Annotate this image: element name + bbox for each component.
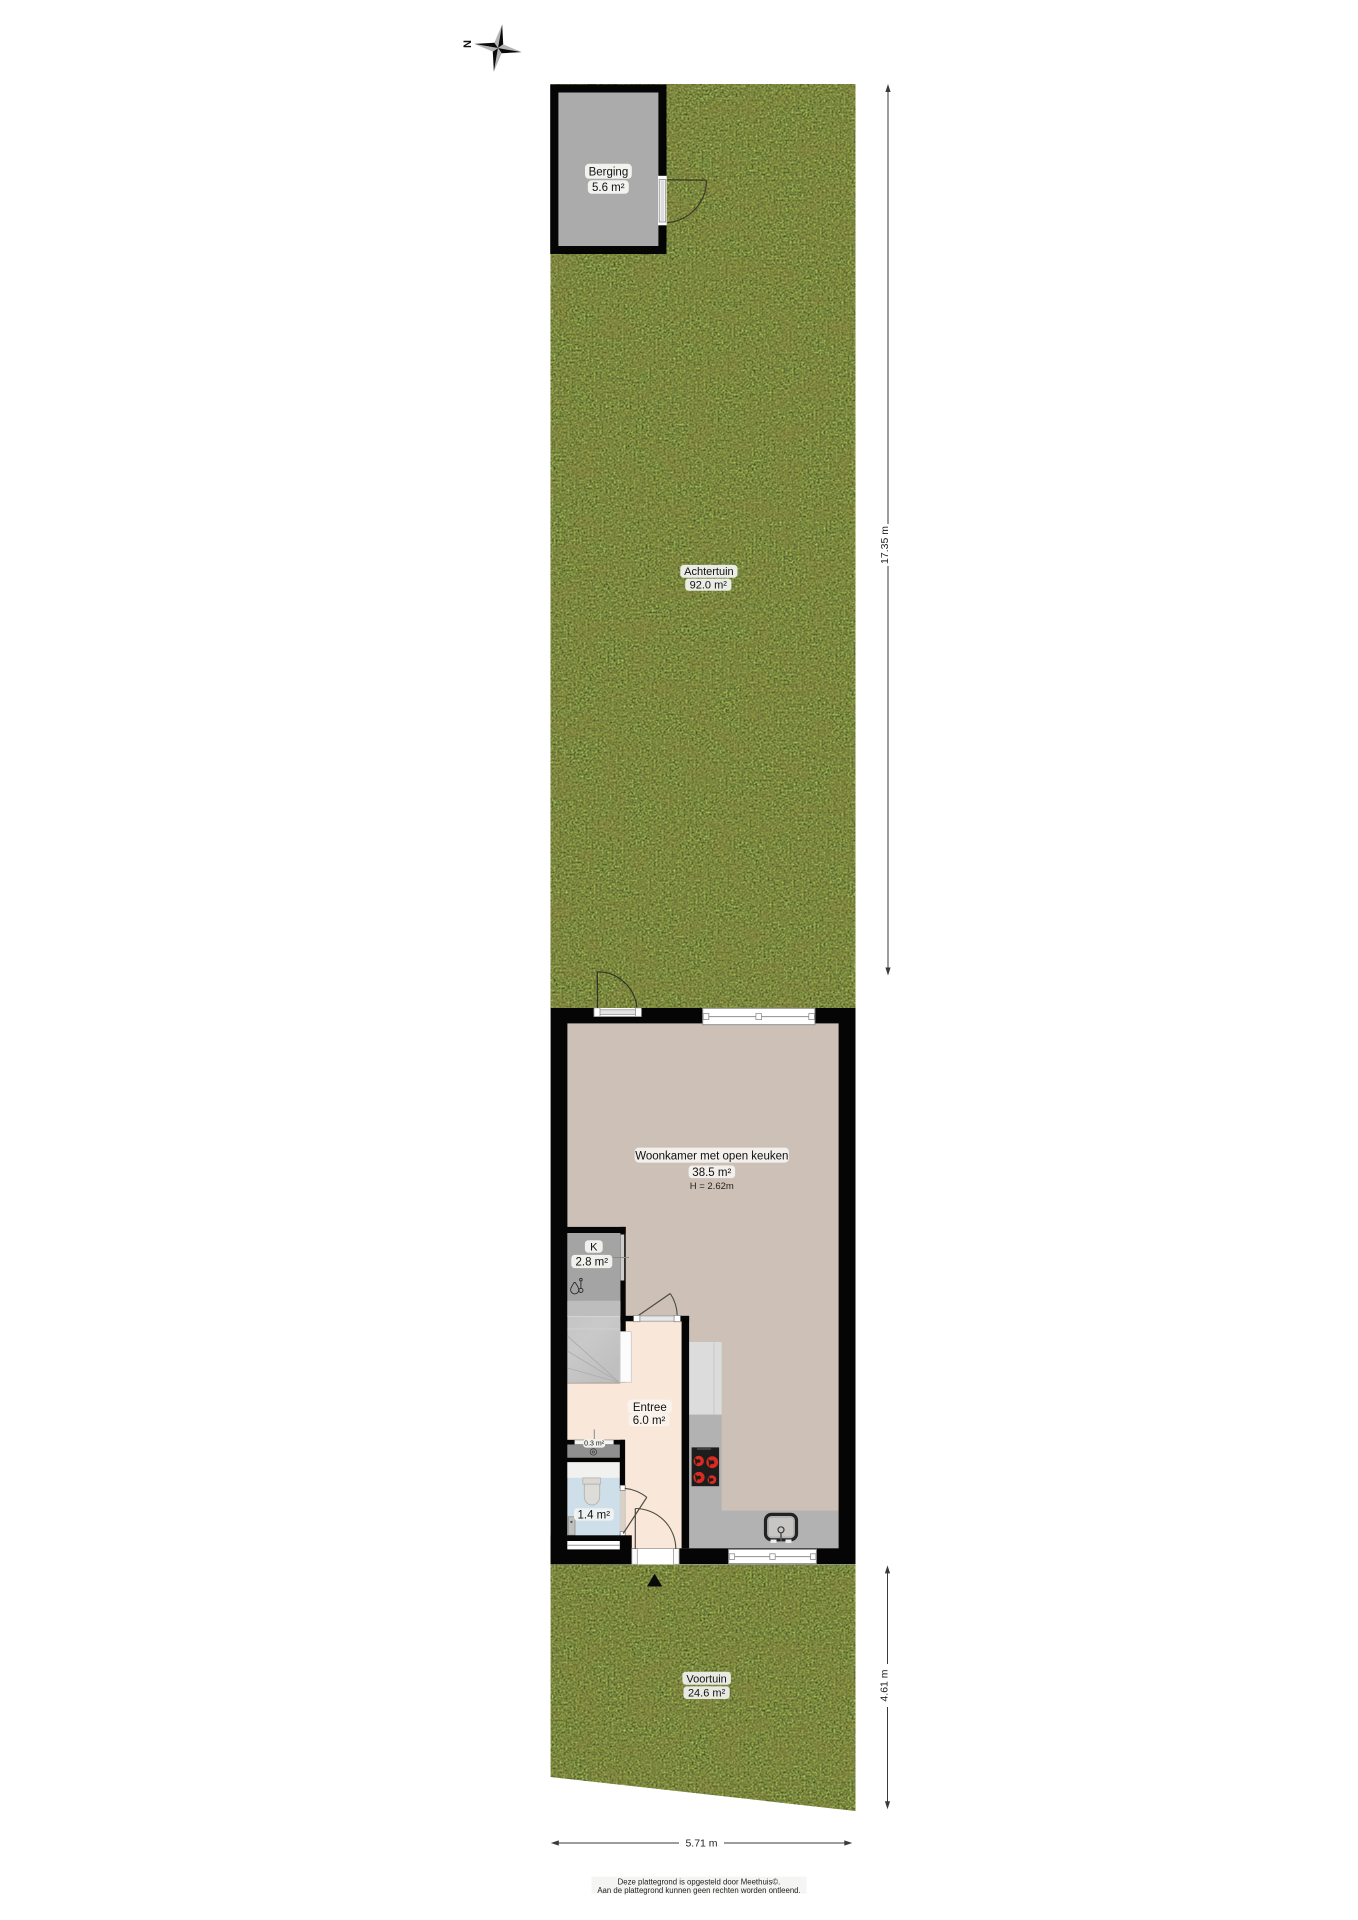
svg-text:38.5 m²: 38.5 m² bbox=[692, 1167, 731, 1179]
svg-text:N: N bbox=[462, 40, 474, 48]
svg-text:4.61 m: 4.61 m bbox=[879, 1669, 891, 1701]
svg-text:2.8 m²: 2.8 m² bbox=[576, 1257, 609, 1269]
svg-text:0.3 m²: 0.3 m² bbox=[584, 1441, 605, 1448]
svg-text:H = 2.62m: H = 2.62m bbox=[690, 1181, 734, 1192]
svg-text:24.6 m²: 24.6 m² bbox=[688, 1688, 726, 1700]
svg-text:Berging: Berging bbox=[589, 167, 629, 179]
svg-text:6.0 m²: 6.0 m² bbox=[633, 1415, 666, 1427]
svg-text:Woonkamer met open keuken: Woonkamer met open keuken bbox=[635, 1150, 788, 1162]
svg-text:Achtertuin: Achtertuin bbox=[684, 566, 734, 578]
svg-text:K: K bbox=[590, 1242, 598, 1254]
svg-text:Voortuin: Voortuin bbox=[686, 1673, 726, 1685]
svg-text:5.6 m²: 5.6 m² bbox=[592, 182, 625, 194]
svg-text:Aan de plattegrond kunnen geen: Aan de plattegrond kunnen geen rechten w… bbox=[597, 1886, 800, 1895]
svg-text:Entree: Entree bbox=[633, 1402, 667, 1414]
svg-text:1.4 m²: 1.4 m² bbox=[578, 1509, 611, 1521]
svg-text:5.71 m: 5.71 m bbox=[685, 1838, 717, 1850]
svg-text:17.35 m: 17.35 m bbox=[879, 526, 891, 564]
svg-text:92.0 m²: 92.0 m² bbox=[690, 580, 728, 592]
